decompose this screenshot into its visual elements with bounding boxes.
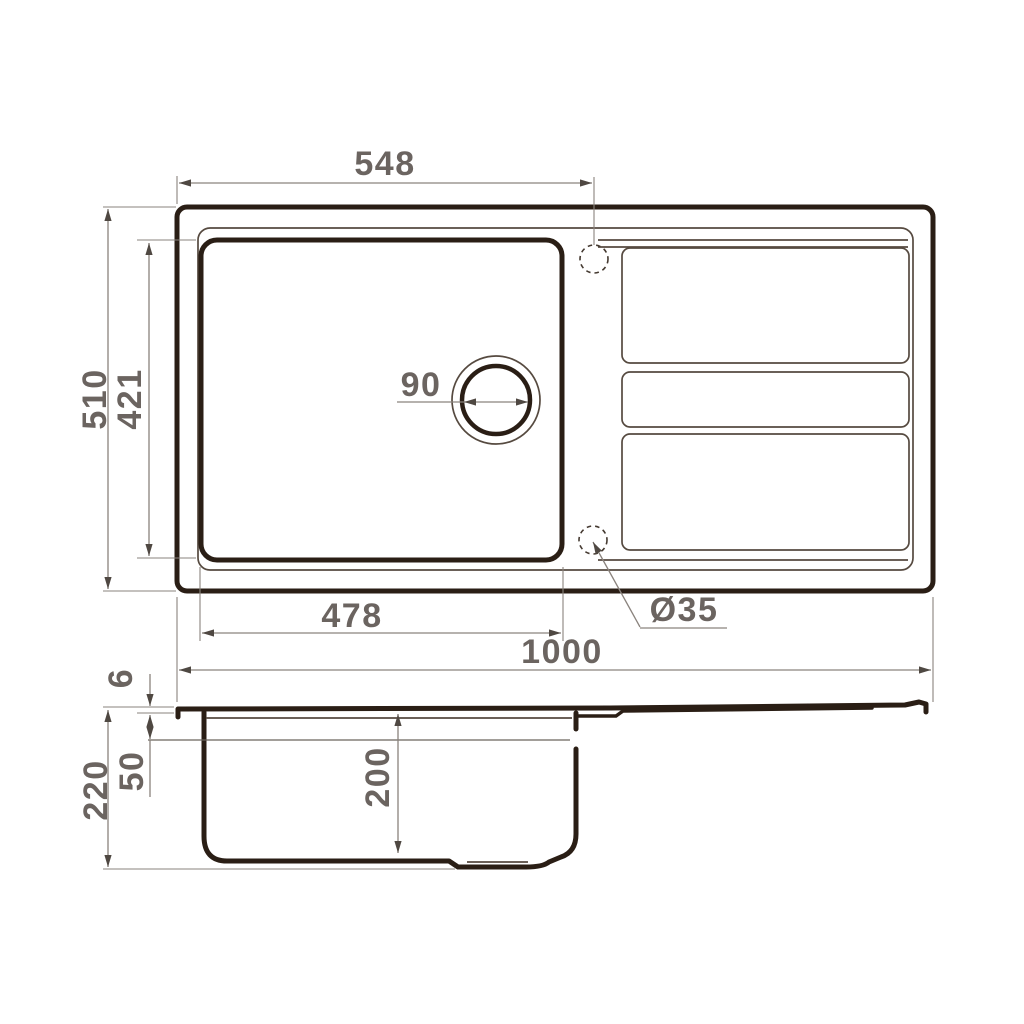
dim-bowl-depth-label: 200 bbox=[359, 746, 397, 807]
bowl-outline bbox=[201, 240, 562, 560]
dimension-bowl-depth: 200 bbox=[359, 714, 398, 853]
dim-bowl-inner-depth-label: 421 bbox=[111, 368, 149, 429]
dim-top-width-label: 548 bbox=[354, 145, 415, 183]
dimension-ledge-depth: 50 bbox=[113, 728, 151, 797]
dim-overall-width-label: 1000 bbox=[521, 633, 603, 671]
dim-rim-height-label: 6 bbox=[102, 668, 140, 688]
dim-drain-diameter-label: 90 bbox=[401, 366, 442, 404]
side-view: 6 50 220 200 bbox=[77, 668, 926, 869]
dimension-overall-width: 1000 bbox=[177, 597, 933, 702]
top-view: 548 510 421 90 478 bbox=[76, 145, 933, 702]
dim-bowl-inner-width-label: 478 bbox=[321, 597, 382, 635]
drainboard-panel bbox=[622, 434, 909, 550]
drainboard-panel bbox=[622, 248, 909, 363]
drawing-svg: 548 510 421 90 478 bbox=[0, 0, 1024, 1024]
sink-technical-drawing: 548 510 421 90 478 bbox=[0, 0, 1024, 1024]
dimension-rim-height: 6 bbox=[102, 668, 174, 728]
dim-tap-hole-diameter-label: Ø35 bbox=[650, 591, 719, 629]
dim-overall-height-label: 220 bbox=[77, 759, 115, 820]
dim-overall-depth-label: 510 bbox=[76, 368, 114, 429]
dim-ledge-depth-label: 50 bbox=[113, 751, 151, 792]
drainboard-panel bbox=[622, 372, 909, 427]
